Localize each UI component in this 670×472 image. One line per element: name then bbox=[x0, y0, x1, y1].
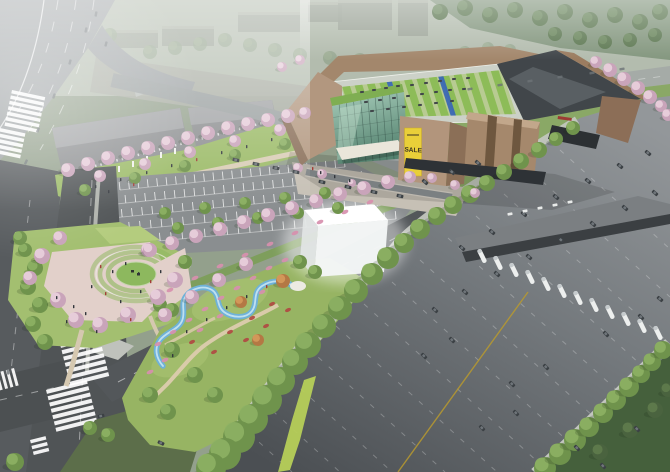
rooftop-car bbox=[370, 110, 374, 112]
rooftop-car bbox=[424, 82, 428, 84]
tree-highlight bbox=[313, 315, 328, 330]
tree-highlight bbox=[144, 243, 153, 252]
tree-highlight bbox=[188, 367, 198, 377]
tree-highlight bbox=[159, 308, 168, 317]
person bbox=[56, 296, 57, 299]
rendering-canvas: SALE bbox=[0, 0, 670, 472]
rooftop-car bbox=[372, 89, 376, 91]
person bbox=[312, 167, 313, 170]
tree-highlight bbox=[33, 297, 43, 307]
person bbox=[320, 171, 321, 174]
person bbox=[100, 265, 101, 268]
tree-highlight bbox=[514, 153, 524, 163]
person bbox=[186, 330, 187, 333]
aerial-rendering: SALE bbox=[0, 0, 670, 472]
tree-highlight bbox=[358, 181, 367, 190]
tree-highlight bbox=[190, 229, 199, 238]
rooftop-car bbox=[364, 101, 368, 103]
tree-highlight bbox=[214, 222, 223, 231]
tree-highlight bbox=[143, 387, 153, 397]
tree-highlight bbox=[7, 454, 18, 465]
person bbox=[160, 270, 161, 273]
person bbox=[140, 290, 141, 293]
person bbox=[226, 306, 227, 309]
person bbox=[334, 175, 335, 178]
tree-highlight bbox=[427, 173, 433, 179]
tree-highlight bbox=[84, 421, 93, 430]
rooftop-car bbox=[392, 97, 396, 99]
person bbox=[73, 305, 74, 308]
rooftop-car bbox=[378, 99, 382, 101]
tree-highlight bbox=[238, 215, 247, 224]
tree-highlight bbox=[334, 187, 343, 196]
person bbox=[130, 318, 131, 321]
tree-highlight bbox=[623, 422, 633, 432]
rooftop-car bbox=[418, 104, 422, 106]
person bbox=[266, 285, 267, 288]
tree-highlight bbox=[404, 171, 411, 178]
garden-plaza bbox=[290, 281, 306, 291]
tree-highlight bbox=[310, 194, 319, 203]
tree-highlight bbox=[235, 296, 242, 303]
rooftop-car bbox=[448, 89, 452, 91]
tree-highlight bbox=[362, 264, 376, 278]
tree-highlight bbox=[277, 274, 286, 283]
tree-highlight bbox=[309, 265, 318, 274]
tree-highlight bbox=[332, 202, 339, 209]
tree-highlight bbox=[450, 180, 456, 186]
rooftop-car bbox=[402, 106, 406, 108]
tree-highlight bbox=[213, 273, 222, 282]
rooftop-car bbox=[466, 77, 470, 79]
rooftop-car bbox=[396, 85, 400, 87]
rooftop-car bbox=[438, 80, 442, 82]
tree-highlight bbox=[480, 175, 490, 185]
person bbox=[91, 285, 92, 288]
tree-highlight bbox=[179, 255, 188, 264]
rooftop-car bbox=[386, 108, 390, 110]
tree-highlight bbox=[632, 81, 641, 90]
rooftop-car bbox=[450, 100, 454, 102]
tree-highlight bbox=[550, 132, 559, 141]
person bbox=[96, 330, 97, 333]
tree-highlight bbox=[345, 280, 360, 295]
person bbox=[138, 272, 139, 275]
plaza-sculpture bbox=[131, 270, 134, 273]
tree-highlight bbox=[532, 142, 542, 152]
tree-highlight bbox=[319, 187, 326, 194]
tree-highlight bbox=[567, 121, 576, 130]
tree-highlight bbox=[429, 208, 440, 219]
tree-highlight bbox=[240, 257, 249, 266]
tree-highlight bbox=[644, 90, 653, 99]
tree-highlight bbox=[93, 317, 103, 327]
person bbox=[66, 320, 67, 323]
rooftop-car bbox=[406, 95, 410, 97]
tree-highlight bbox=[395, 234, 407, 246]
person bbox=[206, 318, 207, 321]
person bbox=[150, 280, 151, 283]
person bbox=[120, 300, 121, 303]
tree-highlight bbox=[239, 405, 258, 424]
tree-highlight bbox=[165, 342, 175, 352]
rooftop-car bbox=[420, 93, 424, 95]
person bbox=[105, 292, 106, 295]
tree-highlight bbox=[161, 404, 171, 414]
tree-highlight bbox=[618, 72, 627, 81]
tree-highlight bbox=[497, 164, 507, 174]
person bbox=[349, 179, 350, 182]
tree-highlight bbox=[121, 307, 131, 317]
banner-line bbox=[407, 134, 419, 136]
tree-highlight bbox=[411, 220, 423, 232]
tree-highlight bbox=[26, 316, 36, 326]
tree-highlight bbox=[329, 297, 344, 312]
rooftop-car bbox=[410, 84, 414, 86]
tree-highlight bbox=[604, 63, 613, 72]
tree-highlight bbox=[24, 271, 33, 280]
person bbox=[246, 295, 247, 298]
tree-highlight bbox=[69, 312, 79, 322]
tree-highlight bbox=[51, 292, 61, 302]
tree-highlight bbox=[296, 333, 312, 349]
tree-highlight bbox=[655, 100, 662, 107]
tree-highlight bbox=[208, 387, 218, 397]
tree-highlight bbox=[197, 454, 216, 472]
rooftop-car bbox=[462, 88, 466, 90]
banner-text: SALE bbox=[404, 146, 422, 154]
person bbox=[112, 270, 113, 273]
tree-highlight bbox=[268, 368, 285, 385]
tree-highlight bbox=[382, 175, 391, 184]
tree-highlight bbox=[172, 222, 179, 229]
tree-highlight bbox=[102, 428, 111, 437]
tree-highlight bbox=[168, 272, 178, 282]
person bbox=[125, 262, 126, 265]
tree-highlight bbox=[253, 386, 272, 405]
tree-highlight bbox=[470, 188, 476, 194]
tree-highlight bbox=[166, 236, 175, 245]
tree-highlight bbox=[283, 350, 299, 366]
tree-highlight bbox=[648, 402, 658, 412]
rooftop-car bbox=[384, 87, 388, 89]
person bbox=[172, 354, 173, 357]
haze-top-right bbox=[300, 0, 670, 60]
tree-highlight bbox=[378, 248, 392, 262]
tree-highlight bbox=[593, 444, 603, 454]
person bbox=[85, 312, 86, 315]
tree-highlight bbox=[662, 383, 670, 392]
tree-highlight bbox=[252, 334, 259, 341]
rooftop-car bbox=[434, 91, 438, 93]
tree-highlight bbox=[151, 289, 161, 299]
tree-highlight bbox=[186, 290, 195, 299]
tree-highlight bbox=[655, 342, 666, 353]
tree-highlight bbox=[294, 255, 303, 264]
tree-highlight bbox=[445, 197, 456, 208]
tree-highlight bbox=[662, 109, 669, 116]
tree-highlight bbox=[38, 334, 48, 344]
rooftop-car bbox=[452, 78, 456, 80]
rooftop-car bbox=[360, 91, 364, 93]
rooftop-car bbox=[434, 102, 438, 104]
